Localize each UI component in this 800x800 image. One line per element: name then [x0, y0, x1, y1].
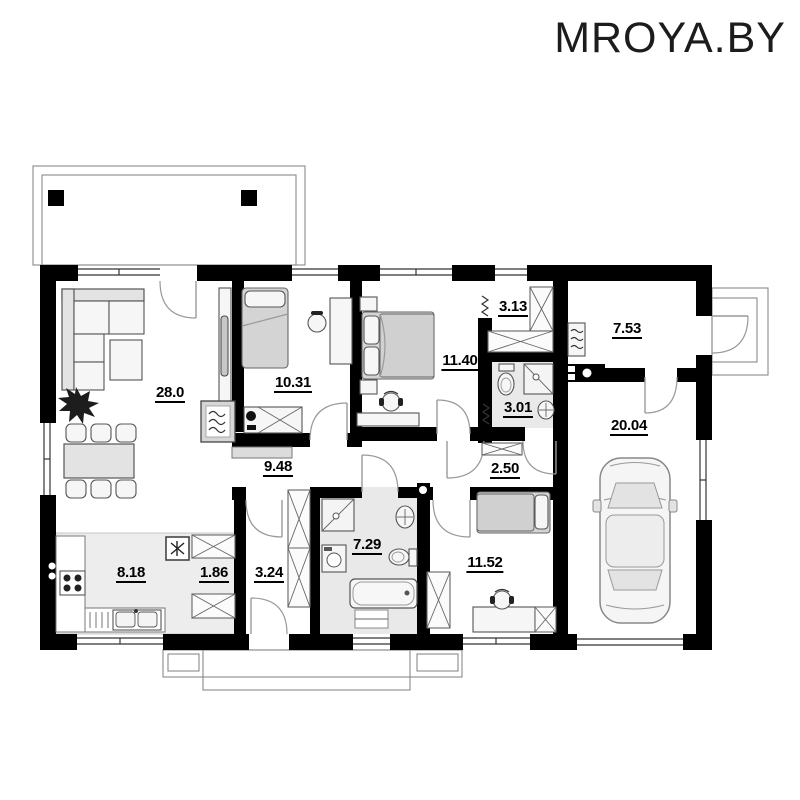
bed-icon — [242, 288, 288, 368]
desk-icon — [473, 607, 535, 632]
dresser-icon — [244, 407, 302, 433]
window-icon — [463, 638, 530, 644]
window-icon — [77, 638, 163, 644]
window-icon — [292, 269, 338, 275]
door-icon — [246, 500, 282, 537]
window-icon — [495, 269, 527, 275]
toilet-icon — [389, 549, 417, 566]
shower-icon — [322, 499, 354, 531]
room-label-bathroom-small: 3.01 — [503, 400, 533, 418]
toilet-icon — [498, 364, 514, 395]
door-icon — [310, 403, 347, 440]
bathtub-icon — [350, 579, 417, 608]
door-icon — [362, 455, 398, 492]
room-label-bathroom: 7.29 — [352, 537, 382, 555]
door-icon — [433, 500, 470, 537]
dining-table-icon — [64, 424, 136, 498]
fireplace-icon — [201, 401, 235, 442]
window-icon — [700, 440, 706, 520]
floor-plan-page: MROYA.BY — [0, 0, 800, 800]
room-label-living-room: 28.0 — [155, 385, 185, 403]
tv-console-icon — [219, 288, 231, 402]
room-label-garage: 20.04 — [610, 418, 648, 436]
room-label-bedroom-2: 11.40 — [441, 353, 478, 371]
window-icon — [44, 423, 50, 495]
nightstand-icon — [360, 297, 377, 311]
door-icon — [523, 441, 556, 474]
entry-porch — [163, 650, 462, 690]
room-label-vestibule: 3.24 — [254, 565, 284, 583]
nightstand-icon — [360, 380, 377, 394]
chair-icon — [379, 392, 403, 412]
boiler-icon — [568, 323, 585, 356]
sink-icon — [538, 401, 554, 419]
terrace — [33, 166, 305, 265]
plant-icon — [58, 387, 99, 424]
double-bed-icon — [362, 312, 434, 379]
window-icon — [353, 638, 390, 644]
fridge-icon — [166, 537, 189, 560]
bed-icon — [477, 492, 550, 533]
room-label-bedroom-1: 10.31 — [274, 375, 312, 393]
terrace-post — [48, 190, 64, 206]
door-icon — [447, 441, 484, 478]
room-label-bedroom-3: 11.52 — [466, 555, 503, 573]
room-label-hallway: 9.48 — [263, 459, 293, 477]
floor-plan-drawing — [0, 0, 800, 800]
terrace-post — [241, 190, 257, 206]
desk-icon — [357, 413, 419, 426]
room-label-kitchen: 8.18 — [116, 565, 146, 583]
garage-door-icon — [577, 639, 683, 645]
cooktop-icon — [60, 571, 85, 595]
step-icon — [355, 610, 388, 628]
vent-icon — [482, 296, 488, 316]
cabinet-icon — [535, 607, 556, 632]
desk-icon — [330, 298, 352, 364]
door-icon — [437, 400, 470, 434]
chair-icon — [308, 311, 326, 332]
car-icon — [593, 458, 677, 623]
sink-icon — [396, 506, 414, 528]
washing-machine-icon — [322, 545, 346, 572]
wardrobe-icon — [427, 572, 450, 628]
door-icon — [645, 377, 677, 413]
room-label-pantry: 1.86 — [199, 565, 229, 583]
door-icon — [160, 281, 196, 318]
coffee-table-icon — [110, 340, 142, 380]
room-label-boiler-room: 7.53 — [612, 321, 642, 339]
door-icon — [251, 598, 287, 634]
wardrobe-icon — [288, 490, 310, 607]
chair-icon — [490, 590, 514, 610]
shower-icon — [524, 364, 553, 394]
door-icon — [712, 316, 748, 353]
wardrobe-icon — [488, 287, 553, 352]
room-label-hallway-2: 2.50 — [490, 461, 520, 479]
window-icon — [78, 269, 160, 275]
room-label-wardrobe: 3.13 — [498, 299, 528, 317]
shelf-icon — [482, 443, 522, 455]
side-porch — [712, 288, 768, 375]
window-icon — [380, 269, 452, 275]
